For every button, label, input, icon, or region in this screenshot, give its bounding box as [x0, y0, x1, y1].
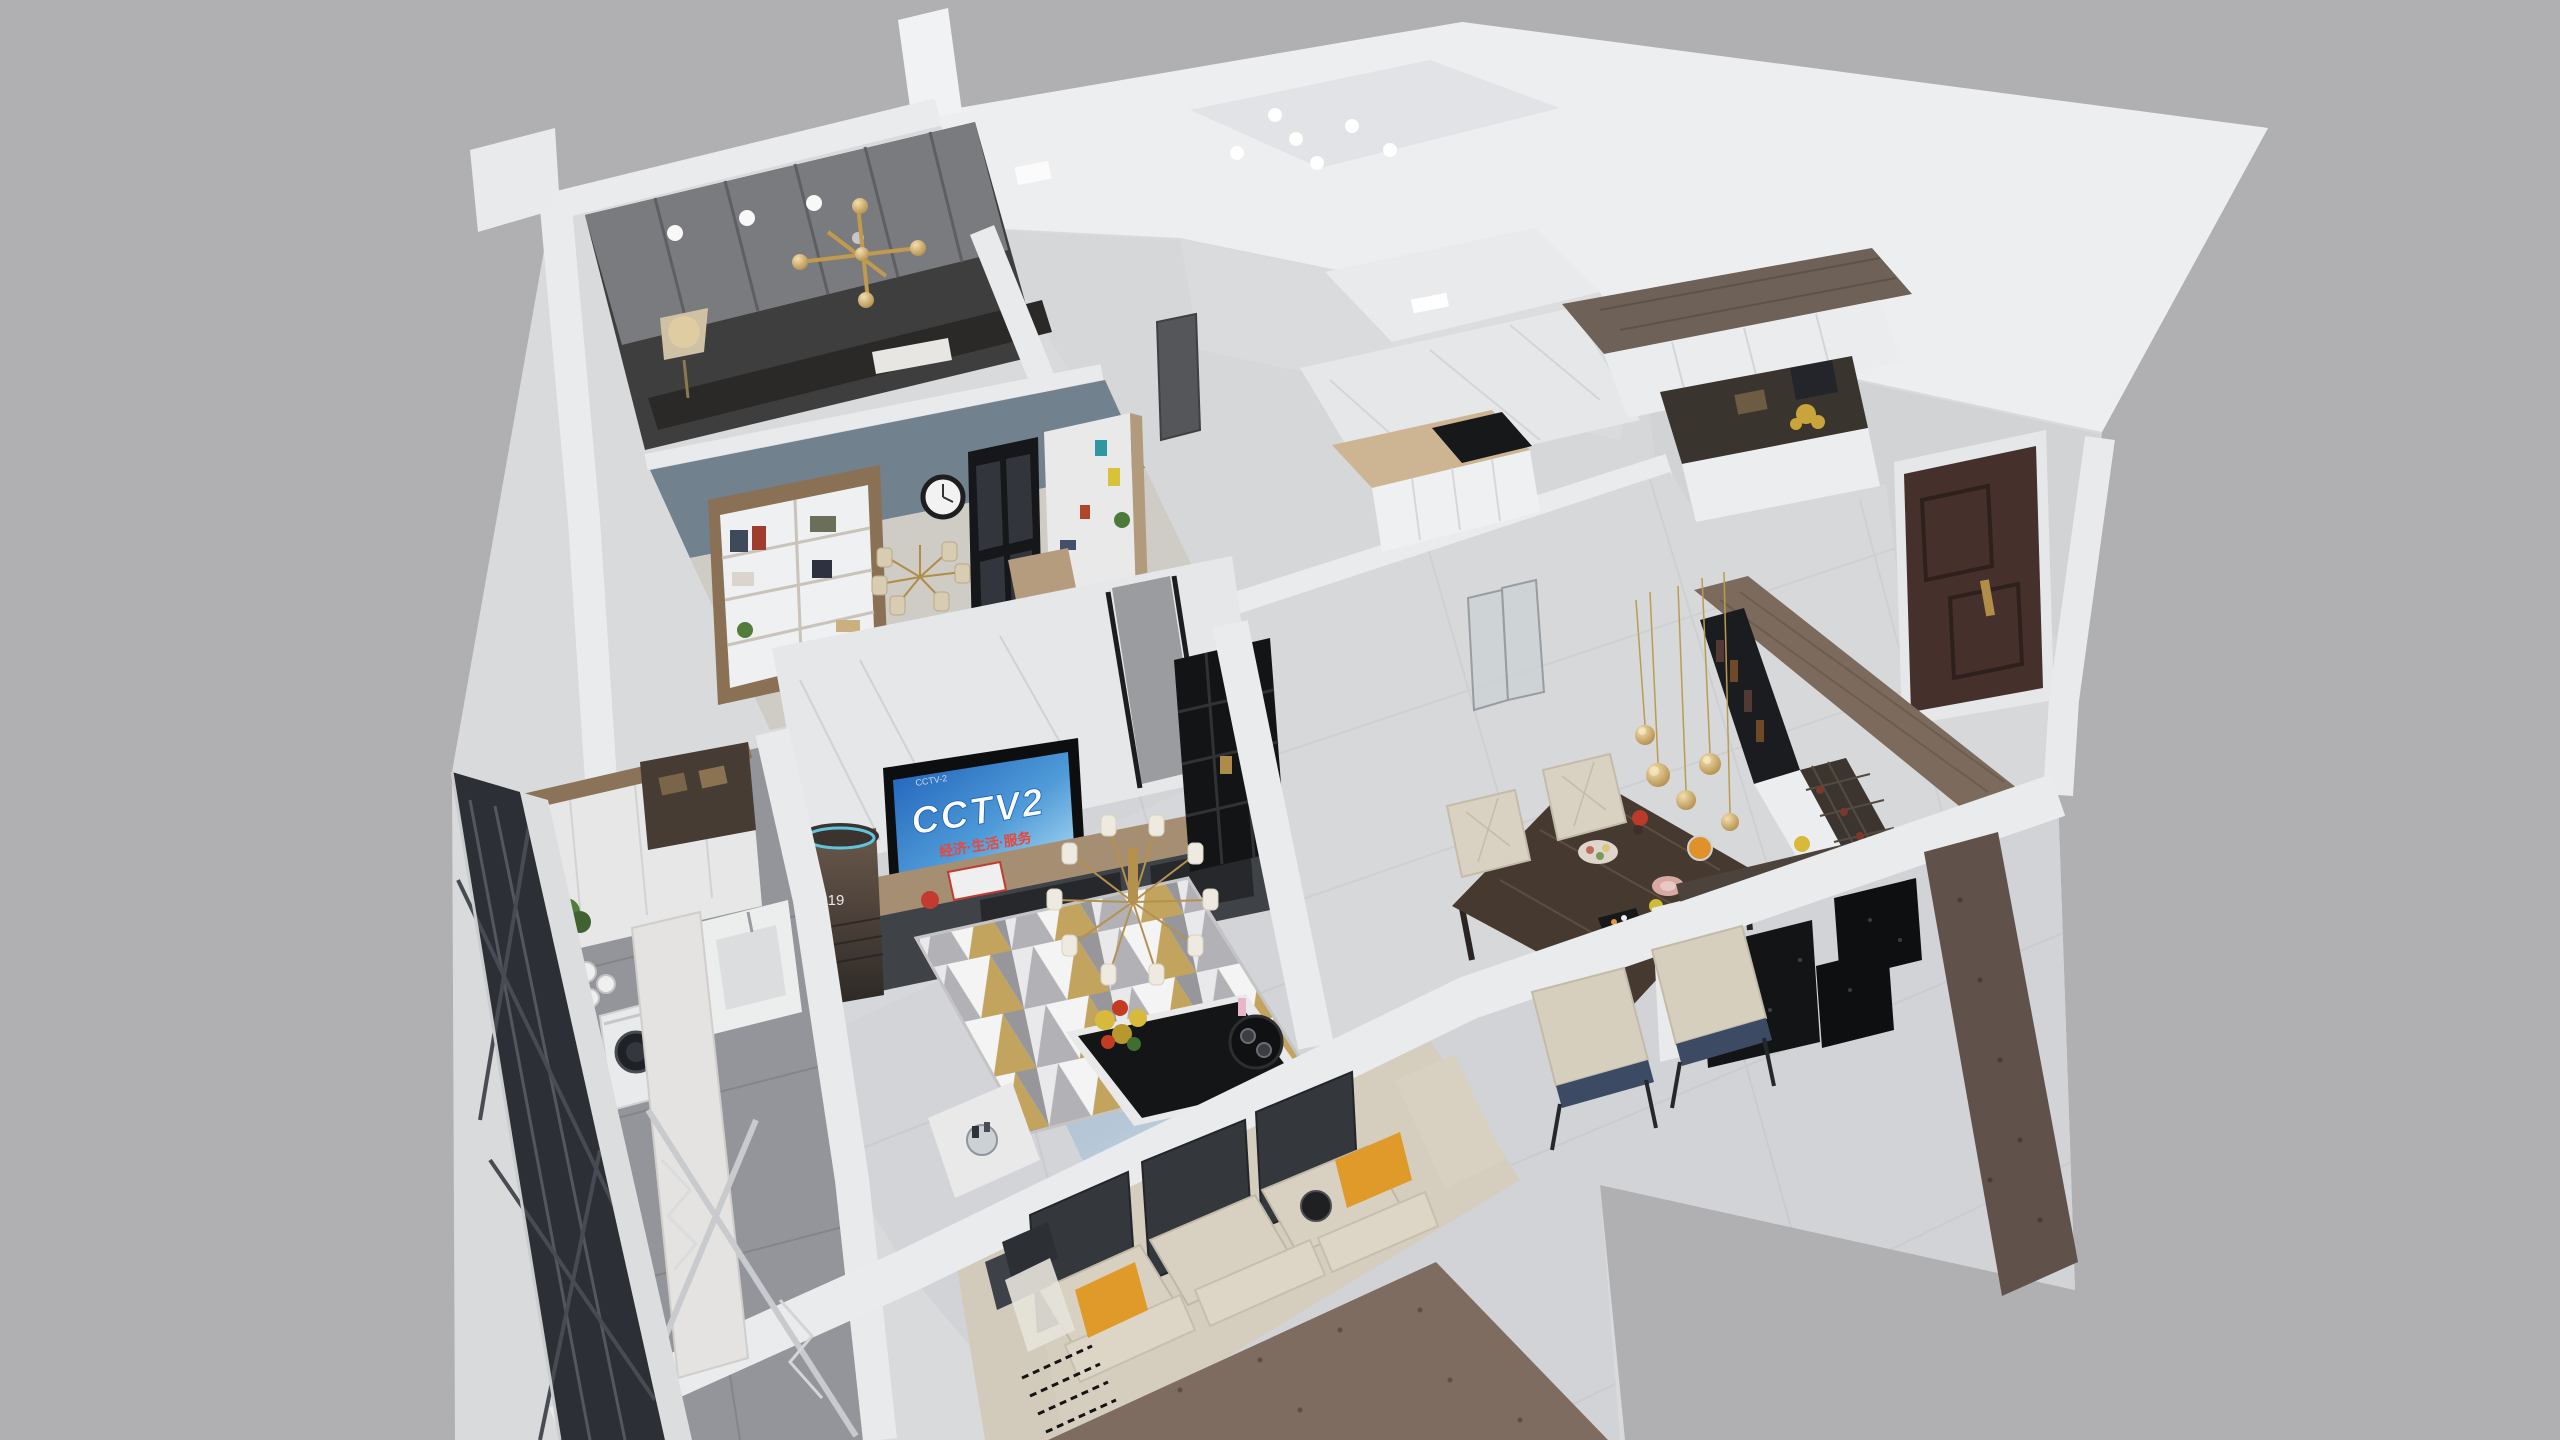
apartment-render: CCTV2 经济·生活·服务 CCTV-2 19 CCTV2: [0, 0, 2560, 1440]
candle: [1238, 998, 1246, 1016]
ac-display: 19: [828, 892, 845, 909]
shelf-gold-decor: [1220, 756, 1232, 774]
study-plant: [1114, 512, 1130, 528]
food-plate-1: [1578, 840, 1618, 864]
floor-lamp-glow: [668, 316, 700, 348]
kitchen-sliding-door: [1468, 580, 1544, 710]
laundry-sink: [700, 900, 802, 1034]
dining-chair-1: [1447, 790, 1530, 877]
juice-jug: [1688, 836, 1712, 860]
corridor-door: [1157, 314, 1200, 440]
red-cup: [921, 891, 939, 909]
red-flower: [1632, 810, 1648, 826]
coffee-table-tray: [1230, 1016, 1282, 1068]
side-stool: [1301, 1191, 1331, 1221]
